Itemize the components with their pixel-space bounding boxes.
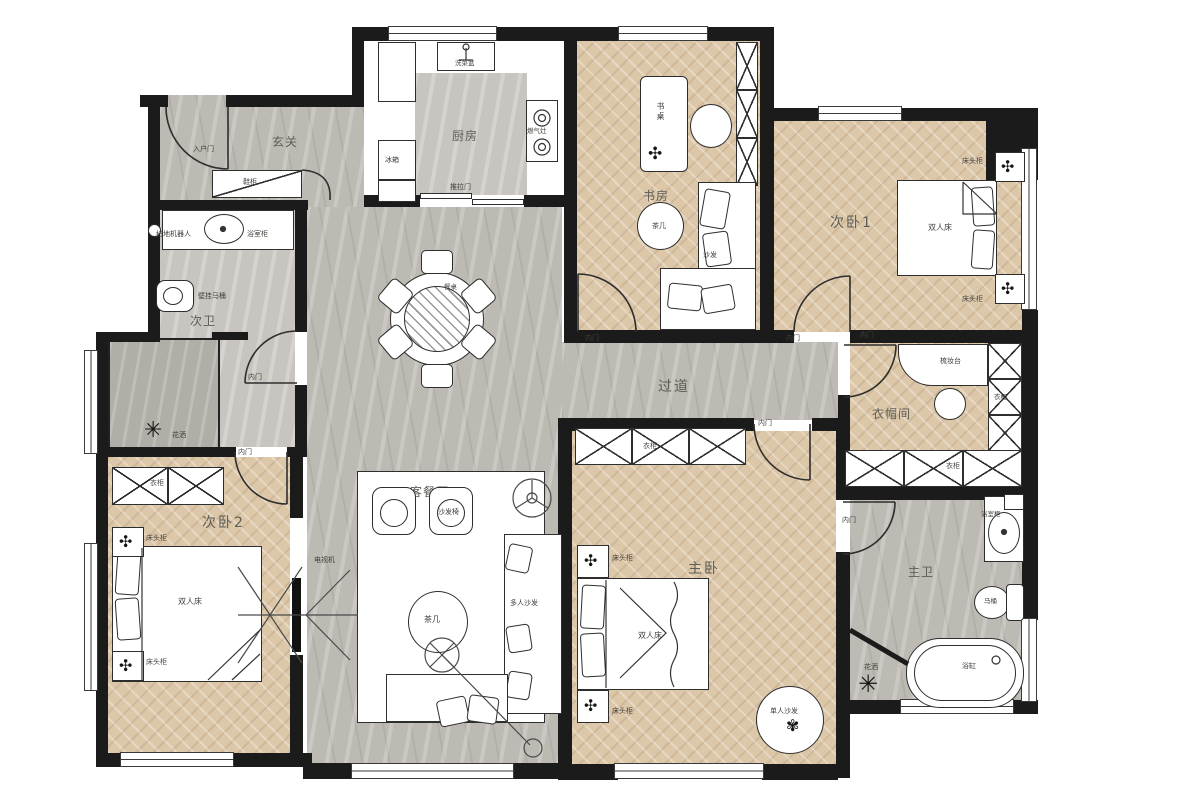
bath1-shelf <box>1004 494 1024 510</box>
bath2-sink <box>204 214 244 244</box>
sliding-door-label: 推拉门 <box>450 184 471 191</box>
robot-vacuum-label: 扫地机器人 <box>156 231 191 238</box>
bath2-shower-floor <box>108 338 220 454</box>
master-wardrobe <box>689 428 746 465</box>
lamp-icon: ✣ <box>584 698 597 714</box>
study-sofa-label: 沙发 <box>703 252 717 259</box>
wall-segment <box>295 207 307 332</box>
master-bed-label: 双人床 <box>638 632 662 640</box>
wall-segment <box>558 764 618 780</box>
bed-pillow <box>971 186 996 226</box>
wall-segment <box>512 763 564 779</box>
wall-segment <box>760 41 774 332</box>
dresser-label: 梳妆台 <box>940 358 961 365</box>
bench-pillow <box>466 694 499 725</box>
bed-pillow <box>115 552 142 596</box>
sliding-door-panel <box>420 193 472 199</box>
bed-pillow <box>580 584 606 629</box>
nightstand-label: 床头柜 <box>146 659 167 666</box>
sofa-pillow <box>702 230 732 267</box>
wall-segment <box>352 27 364 107</box>
wall-segment <box>850 330 1036 343</box>
study-bookshelf <box>736 138 758 186</box>
bath2-vanity-label: 浴室柜 <box>247 231 268 238</box>
shoe-cabinet-label: 鞋柜 <box>243 179 257 186</box>
toilet-tank <box>1006 584 1024 621</box>
nightstand-label: 床头柜 <box>612 555 633 562</box>
wardrobe-label: 衣柜 <box>994 394 1007 401</box>
room-label-corridor: 过道 <box>658 380 690 394</box>
lamp-icon: ✣ <box>1001 281 1014 297</box>
study-tea-table-label: 茶几 <box>652 223 666 230</box>
master-wardrobe <box>632 428 689 465</box>
wall-segment <box>1022 310 1038 620</box>
wall-toilet-label: 壁挂马桶 <box>198 293 226 300</box>
dining-chair <box>421 250 453 274</box>
room-label-bedroom2: 次卧2 <box>202 516 245 530</box>
wall-segment <box>148 200 308 210</box>
nightstand-label: 床头柜 <box>612 708 633 715</box>
bed-pillow <box>115 597 142 641</box>
room-label-study: 书房 <box>643 190 669 202</box>
wall-toilet-bowl <box>163 287 183 305</box>
wall-segment <box>564 30 577 207</box>
bedroom2-wardrobe <box>168 467 224 505</box>
wall-segment <box>497 27 618 41</box>
bathtub-inner <box>914 645 1016 701</box>
dining-chair <box>421 364 453 388</box>
wall-segment <box>838 395 850 457</box>
wall-segment <box>290 455 303 518</box>
room-label-bath2: 次卫 <box>190 315 216 327</box>
wall-segment <box>96 447 236 457</box>
study-bookshelf <box>736 90 758 138</box>
window <box>351 763 514 779</box>
bath1-shower-label: 花洒 <box>864 664 878 671</box>
room-label-kitchen: 厨房 <box>452 130 478 142</box>
single-sofa-label: 单人沙发 <box>770 708 798 715</box>
window <box>1021 618 1037 702</box>
room-label-foyer: 玄关 <box>272 136 298 148</box>
kitchen-cabinet <box>378 180 416 202</box>
wall-segment <box>287 447 303 457</box>
window <box>614 763 764 779</box>
study-door-label: 内门 <box>585 335 599 342</box>
closet-wardrobe <box>988 343 1022 379</box>
bath1-door-label: 内门 <box>842 517 856 524</box>
nightstand-label: 床头柜 <box>146 535 167 542</box>
entry-door-label: 入户门 <box>193 146 214 153</box>
shoe-cabinet <box>212 170 302 198</box>
armchair-seat <box>380 499 408 527</box>
wall-segment <box>290 753 312 767</box>
wall-segment <box>524 195 577 207</box>
room-label-bath1: 主卫 <box>908 566 934 578</box>
window <box>84 350 98 454</box>
wall-segment <box>1022 700 1038 714</box>
bath2-shower-label: 花洒 <box>172 432 186 439</box>
bed-pillow <box>971 229 996 269</box>
nightstand-label: 床头柜 <box>962 158 983 165</box>
sofa-pillow <box>505 670 533 700</box>
wall-segment <box>902 108 1036 121</box>
desk-lamp-icon: ✣ <box>648 146 662 163</box>
window <box>818 106 902 121</box>
closet-wardrobe <box>845 450 904 487</box>
shower-head-icon: ✳ <box>144 420 162 442</box>
toilet-label: 马桶 <box>984 598 997 605</box>
sofa-pillow <box>667 282 704 311</box>
window <box>120 752 234 767</box>
floor-plan: 玄关 入户门 鞋柜 扫地机器人 浴室柜 壁挂马桶 次卫 ✳ 花洒 内门 洗菜盆 … <box>0 0 1200 800</box>
lamp-icon: ✣ <box>119 658 132 674</box>
wardrobe-label: 衣柜 <box>150 480 164 487</box>
lamp-icon: ✣ <box>584 553 597 569</box>
dining-table-label: 餐桌 <box>444 284 457 291</box>
wall-segment <box>708 27 774 41</box>
gas-stove-label: 燃气灶 <box>527 128 547 135</box>
window <box>84 543 98 691</box>
master-wardrobe <box>575 428 632 465</box>
tv-screen <box>292 578 301 652</box>
living-tea-table-label: 茶几 <box>424 616 440 624</box>
cushion-plant-icon: ✾ <box>786 718 799 734</box>
study-desk-label: 书桌 <box>656 102 664 122</box>
closet-wardrobe <box>988 415 1022 451</box>
lamp-icon: ✣ <box>119 534 132 550</box>
tv-label: 电视机 <box>314 557 335 564</box>
bath1-sink <box>988 512 1020 554</box>
window <box>388 26 497 41</box>
kitchen-counter <box>378 42 416 102</box>
room-label-closet: 衣帽间 <box>872 408 911 420</box>
wall-segment <box>290 655 303 767</box>
lamp-icon: ✣ <box>1001 159 1014 175</box>
wall-segment <box>564 207 577 332</box>
room-label-master: 主卧 <box>688 562 720 576</box>
wall-segment <box>212 332 248 340</box>
wardrobe-label: 衣柜 <box>643 443 657 450</box>
dresser <box>898 344 988 386</box>
wall-segment <box>226 95 358 107</box>
wall-segment <box>762 764 838 780</box>
nightstand-label: 床头柜 <box>962 296 983 303</box>
master-door-label: 内门 <box>758 420 772 427</box>
plant-icon: ✳ <box>858 672 878 696</box>
bedroom2-bed-label: 双人床 <box>178 598 202 606</box>
bedroom1-door-label: 内门 <box>786 335 800 342</box>
closet-wardrobe <box>963 450 1022 487</box>
armchair-label: 沙发椅 <box>438 509 459 516</box>
sofa-pillow <box>700 283 736 314</box>
window <box>618 26 708 41</box>
wardrobe-label: 衣柜 <box>946 463 960 470</box>
kitchen-sink-label: 洗菜盆 <box>455 60 475 67</box>
bedroom1-bed-label: 双人床 <box>928 224 952 232</box>
corridor-floor <box>562 342 838 420</box>
bathtub-label: 浴缸 <box>962 663 976 670</box>
bedroom2-door-label: 内门 <box>238 449 252 456</box>
bed-pillow <box>580 632 606 677</box>
fridge-label: 冰箱 <box>385 157 399 164</box>
sofa-pillow <box>505 623 533 653</box>
sectional-sofa-label: 多人沙发 <box>510 600 538 607</box>
wall-segment <box>836 700 904 714</box>
wall-segment <box>836 552 850 778</box>
study-bookshelf <box>736 42 758 90</box>
study-chair <box>690 104 732 148</box>
bath1-vanity-label: 浴室柜 <box>981 511 1001 518</box>
closet-door-label: 内门 <box>860 332 874 339</box>
sliding-door-panel <box>472 199 524 205</box>
bath2-door-label: 内门 <box>248 374 262 381</box>
room-label-bedroom1: 次卧1 <box>830 216 873 230</box>
dresser-stool <box>934 388 966 420</box>
